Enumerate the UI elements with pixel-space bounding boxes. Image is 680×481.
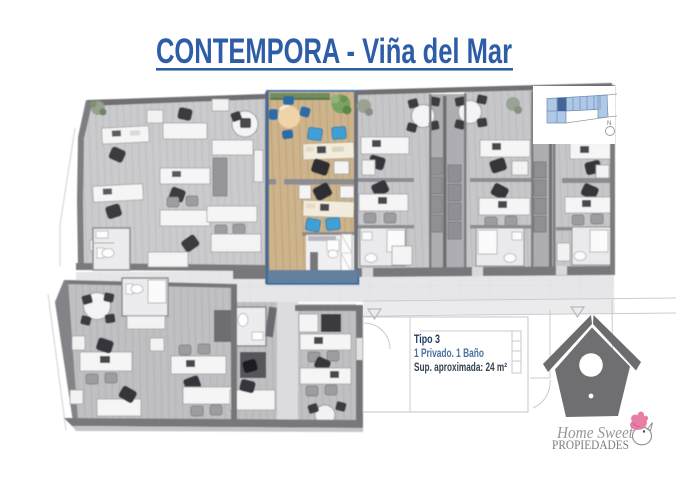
svg-text:Sup. aproximada: 24 m²: Sup. aproximada: 24 m² (414, 360, 507, 374)
svg-text:Tipo 3: Tipo 3 (414, 332, 440, 346)
svg-text:CONTEMPORA - Viña del Mar: CONTEMPORA - Viña del Mar (156, 31, 512, 71)
svg-text:PROPIEDADES: PROPIEDADES (552, 437, 629, 452)
svg-text:1 Privado. 1 Baño: 1 Privado. 1 Baño (414, 346, 484, 360)
